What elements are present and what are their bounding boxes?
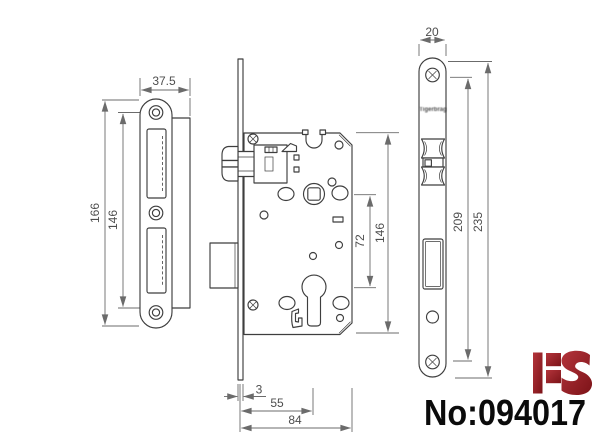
- hs-logo: [533, 351, 592, 395]
- faceplate-screw-span-label: 209: [451, 212, 465, 232]
- strike-plate-flange: [172, 118, 190, 308]
- hs-logo-bar-vertical: [533, 353, 543, 394]
- case-depth-label: 84: [288, 413, 302, 427]
- lock-drawing-canvas: 37.5 166 146: [0, 0, 600, 440]
- lock-body-view: 146 72 3 55 84: [210, 59, 399, 432]
- brand-stamp: Tigerbrag: [419, 107, 447, 113]
- faceplate-view: 20 Tigerbrag: [419, 25, 492, 378]
- part-number: No:094017: [424, 392, 586, 433]
- forend-thickness-dimension: 3: [224, 383, 266, 402]
- faceplate-screw-span-dimension: 209: [450, 77, 472, 361]
- lock-forend-strip: [238, 59, 243, 380]
- strike-width-label: 37.5: [152, 74, 176, 88]
- centre-distance-label: 72: [353, 234, 367, 248]
- case-height-dimension: 146: [356, 133, 399, 333]
- deadbolt: [210, 243, 238, 288]
- backset-dimension: 55: [240, 384, 313, 432]
- strike-length-label: 166: [88, 203, 102, 223]
- forend-thickness-label: 3: [256, 383, 263, 397]
- faceplate-latch-opening: [422, 139, 445, 185]
- strike-screw-span-label: 146: [106, 210, 120, 230]
- backset-label: 55: [270, 396, 284, 410]
- hs-logo-s-swoosh: [562, 351, 593, 395]
- latch-bolt: [222, 147, 238, 182]
- spindle-follower: [304, 184, 325, 205]
- faceplate-width-label: 20: [425, 25, 439, 39]
- faceplate-body: [419, 58, 446, 377]
- strike-screw-span-dimension: 146: [106, 113, 141, 309]
- faceplate-width-dimension: 20: [419, 25, 446, 56]
- strike-plate-view: 37.5 166 146: [88, 74, 190, 328]
- hs-logo-bar-top: [546, 353, 561, 366]
- case-top-tab-left: [303, 130, 309, 135]
- strike-plate-body: [140, 99, 172, 328]
- faceplate-length-label: 235: [471, 212, 485, 232]
- case-height-label: 146: [373, 223, 387, 243]
- hs-logo-bar-bottom: [546, 370, 561, 383]
- technical-drawing-page: 37.5 166 146: [0, 0, 600, 440]
- case-top-tab-right: [320, 130, 326, 135]
